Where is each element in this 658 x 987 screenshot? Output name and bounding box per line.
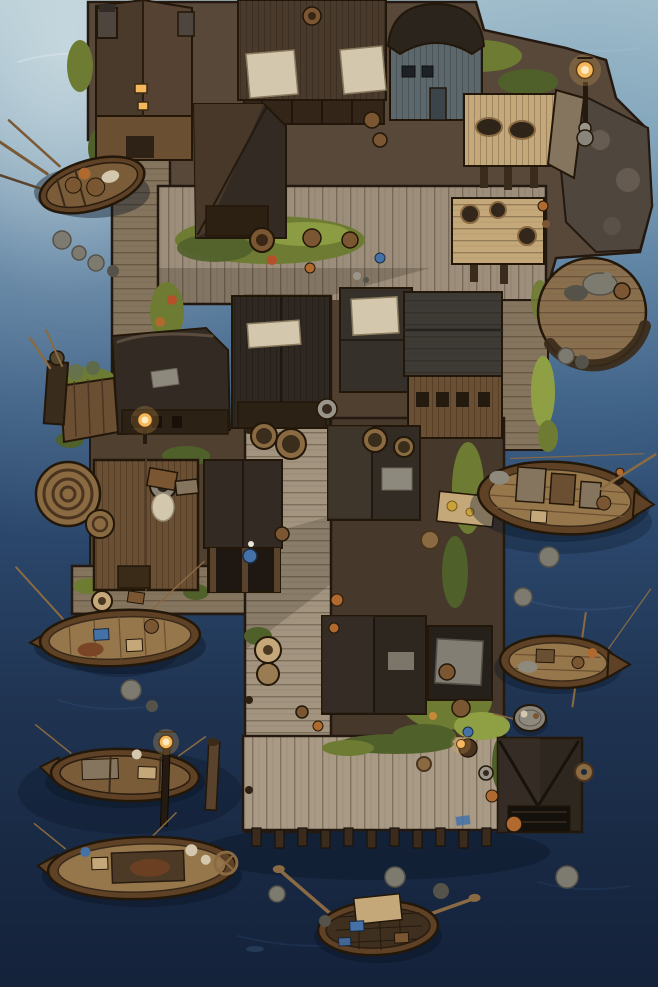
canvas-wrap <box>152 493 174 521</box>
tarp-hut[interactable] <box>428 626 492 700</box>
white-pot-hole <box>483 770 489 776</box>
grass-nw-corner <box>67 40 93 92</box>
piling <box>459 830 468 848</box>
tub[interactable] <box>509 121 535 139</box>
floating-debris <box>246 946 264 952</box>
mushroom <box>248 541 254 547</box>
bush <box>68 364 84 380</box>
canvas-patch <box>247 320 301 348</box>
piling <box>413 830 422 848</box>
roof-boards <box>404 292 502 376</box>
blue-pot <box>243 549 257 563</box>
pot <box>342 232 358 248</box>
lantern-core <box>142 417 149 424</box>
stone <box>363 277 369 283</box>
cargo-barrel <box>596 496 611 511</box>
lit-window <box>138 102 148 110</box>
building-mid-canvas[interactable] <box>232 296 330 428</box>
pumpkin <box>155 317 165 327</box>
building-white-patch[interactable] <box>340 288 412 392</box>
blue-pot <box>375 253 385 263</box>
window <box>478 392 490 407</box>
lantern-core <box>163 739 170 746</box>
piling <box>321 830 330 848</box>
crate <box>147 468 178 491</box>
cargo-crate <box>92 857 108 870</box>
pot <box>538 201 548 211</box>
lantern-core <box>581 66 589 74</box>
capstan-base <box>257 663 279 685</box>
window <box>416 392 429 407</box>
round-platform[interactable] <box>538 258 646 366</box>
porch-post <box>210 548 216 592</box>
pot-orange <box>486 790 498 802</box>
barrel[interactable] <box>275 527 289 541</box>
porch-post <box>274 548 280 592</box>
chimney-small <box>178 12 194 36</box>
roof-patch <box>382 468 412 490</box>
rope-coil <box>417 757 431 771</box>
buoy-stone <box>121 680 141 700</box>
window-slit <box>172 416 182 428</box>
cargo-blue <box>338 937 350 946</box>
shore-stone <box>53 231 71 249</box>
barrel-orange <box>506 816 522 832</box>
cargo-blue <box>350 921 365 932</box>
window <box>402 66 415 77</box>
rope-coil-small <box>86 510 114 538</box>
roof-pot-hole <box>308 12 316 20</box>
roof-patch <box>388 652 414 670</box>
lantern-pole <box>583 82 588 128</box>
pumpkin <box>167 295 177 305</box>
planter-soil <box>368 433 382 447</box>
cliff-boulder <box>616 168 640 192</box>
piling <box>252 828 261 846</box>
canvas-patch <box>351 297 399 335</box>
boathouse[interactable] <box>498 738 582 832</box>
thwart <box>109 757 110 791</box>
statue-post <box>44 361 68 424</box>
piling <box>436 828 445 846</box>
buoy-stone <box>146 700 158 712</box>
pot-orange <box>313 721 323 731</box>
table-hub <box>98 597 106 605</box>
bollard <box>245 696 253 704</box>
starfish <box>429 712 437 720</box>
lit-window <box>135 84 147 93</box>
piling <box>390 828 399 846</box>
cargo-blue <box>94 629 110 641</box>
stilt <box>504 164 512 190</box>
barrel[interactable] <box>518 227 536 245</box>
piling <box>482 828 491 846</box>
window <box>436 392 449 407</box>
capstan-hub <box>263 645 273 655</box>
rock-shore <box>575 355 589 369</box>
grass-lowright-2 <box>442 536 468 608</box>
piling <box>275 830 284 848</box>
gangplank <box>82 759 119 780</box>
tub[interactable] <box>476 118 502 136</box>
planter-soil <box>256 428 272 444</box>
cargo-crate <box>530 510 547 523</box>
buoy-stone <box>556 866 578 888</box>
stern-panel <box>354 894 402 925</box>
grass-southdock-2 <box>322 740 374 756</box>
barrel[interactable] <box>364 112 380 128</box>
pile-top <box>207 738 219 746</box>
buoy-stone <box>433 883 449 899</box>
barrel[interactable] <box>614 283 630 299</box>
building-slate-long[interactable] <box>404 292 502 438</box>
cargo-barrel <box>572 656 584 668</box>
map-canvas[interactable] <box>0 0 658 987</box>
rope-ring-hole <box>581 769 587 775</box>
cargo-crate <box>394 932 409 943</box>
barrel[interactable] <box>373 133 387 147</box>
rock-shore <box>558 348 574 364</box>
grass-ne-2 <box>498 69 558 95</box>
piling <box>344 828 353 846</box>
deck-hatch <box>550 473 576 505</box>
buoy-stone <box>269 886 285 902</box>
piling <box>367 830 376 848</box>
pumpkin <box>267 255 277 265</box>
shore-stone <box>107 265 119 277</box>
building-corner-house[interactable] <box>194 104 286 238</box>
stone <box>353 272 361 280</box>
supply <box>533 713 539 719</box>
canvas-patch <box>246 50 298 98</box>
building-tall-house[interactable] <box>96 0 194 160</box>
door[interactable] <box>430 88 446 120</box>
barrel-orange <box>331 594 343 606</box>
gold-cargo <box>447 501 457 511</box>
stone-base <box>577 130 593 146</box>
cargo-crate <box>126 639 143 652</box>
barrel-hole <box>256 234 268 246</box>
chimney-cap <box>99 4 115 12</box>
buoy-stone <box>319 915 331 927</box>
cargo-crate <box>536 649 554 663</box>
building-swoop-roof[interactable] <box>112 328 230 434</box>
bollard <box>245 786 253 794</box>
buoy-stone <box>539 547 559 567</box>
window <box>456 392 469 407</box>
door[interactable] <box>118 566 150 588</box>
hut-with-porch[interactable] <box>204 460 282 592</box>
basket <box>421 531 439 549</box>
battle-map <box>0 0 658 987</box>
pot <box>303 229 321 247</box>
pot <box>542 220 550 228</box>
barrel[interactable] <box>452 699 470 717</box>
grass-east-edge2 <box>538 420 558 452</box>
planter-soil <box>282 435 300 453</box>
cliff-boulder <box>603 217 621 235</box>
brazier <box>305 263 315 273</box>
chimney <box>97 8 117 38</box>
crate <box>175 479 198 495</box>
cargo-crate <box>138 766 156 779</box>
barrel[interactable] <box>461 205 479 223</box>
barrel[interactable] <box>490 202 506 218</box>
stilt <box>500 264 508 284</box>
shore-stone <box>72 246 86 260</box>
barrel[interactable] <box>439 664 455 680</box>
supply <box>521 711 528 718</box>
shore-stone <box>88 255 104 271</box>
window <box>422 66 433 77</box>
bush <box>86 361 100 375</box>
buoy-stone <box>385 867 405 887</box>
thwart <box>159 757 160 793</box>
cargo-barrel <box>144 619 159 634</box>
canvas-patch <box>340 46 386 94</box>
roof-patch <box>151 368 179 387</box>
wall-band <box>238 402 326 428</box>
deck-hatch <box>516 467 546 503</box>
lamp <box>457 740 466 749</box>
crate <box>127 591 144 604</box>
buoy-stone <box>514 588 532 606</box>
sack-pile <box>564 285 588 301</box>
barrel[interactable] <box>296 706 308 718</box>
door[interactable] <box>126 136 154 158</box>
planter-soil <box>398 441 410 453</box>
stone <box>602 272 612 282</box>
piling <box>298 828 307 846</box>
grass-east-edge <box>531 356 555 428</box>
stone-well-hole <box>322 404 332 414</box>
barrel-orange <box>329 623 339 633</box>
